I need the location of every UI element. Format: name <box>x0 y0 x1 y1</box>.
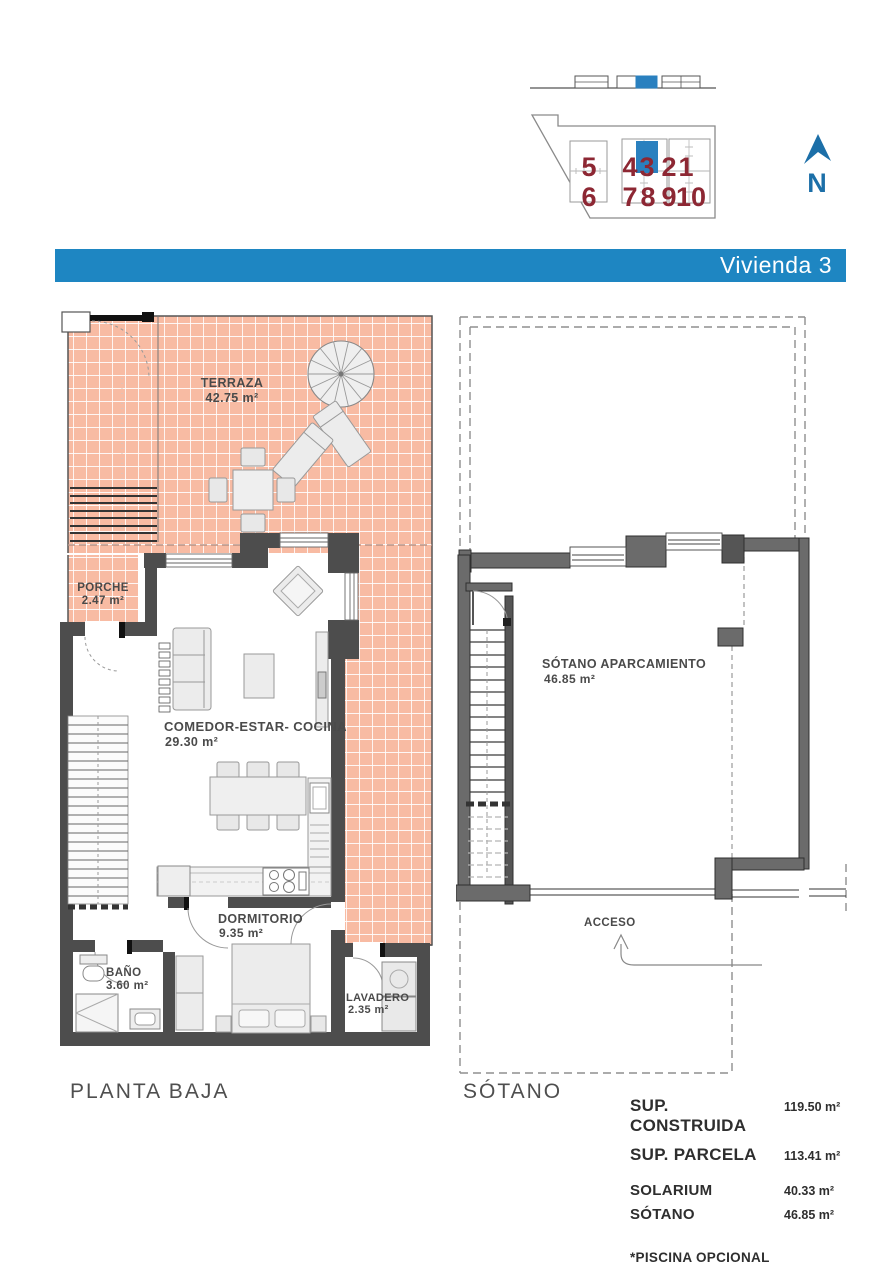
dormitorio-label: DORMITORIO <box>218 912 303 926</box>
shower <box>76 994 118 1032</box>
summary-row: SUP. PARCELA 113.41 m² <box>630 1145 856 1165</box>
floorplan-sheet: 5 6 4 3 7 8 2 1 9 10 N Vivienda 3 <box>0 0 893 1280</box>
lavadero-label: LAVADERO <box>346 992 409 1004</box>
porche-area: 2.47 m² <box>82 595 124 607</box>
area-summary-table: SUP. CONSTRUIDA 119.50 m² SUP. PARCELA 1… <box>630 1096 856 1265</box>
summary-row: SÓTANO 46.85 m² <box>630 1206 856 1223</box>
summary-value: 46.85 m² <box>784 1208 856 1222</box>
north-arrow-icon: N <box>797 133 839 197</box>
ground-floor-plan: TERRAZA 42.75 m² PORCHE 2.47 m² COMEDOR-… <box>60 310 440 1082</box>
unit-number-2: 2 <box>661 152 676 182</box>
page-title: Vivienda 3 <box>720 252 846 279</box>
title-bar: Vivienda 3 <box>55 249 846 282</box>
living-furniture <box>159 566 328 830</box>
unit-number-1: 1 <box>678 152 693 182</box>
summary-note: *PISCINA OPCIONAL <box>630 1250 856 1265</box>
spiral-staircase <box>308 341 374 407</box>
unit-number-10: 10 <box>676 182 706 212</box>
bedroom-furniture <box>176 944 326 1033</box>
plot-boundary <box>460 317 846 1073</box>
aparcamiento-area: 46.85 m² <box>544 672 595 686</box>
aparcamiento-label: SÓTANO APARCAMIENTO <box>542 656 706 671</box>
lavadero-area: 2.35 m² <box>348 1004 389 1016</box>
bano-area: 3.60 m² <box>106 980 148 992</box>
interior-staircase <box>68 716 128 907</box>
armchair <box>273 566 324 617</box>
terraza-area: 42.75 m² <box>205 391 258 405</box>
coffee-table <box>244 654 274 698</box>
access-arrow <box>614 935 762 965</box>
summary-label: SUP. CONSTRUIDA <box>630 1096 784 1136</box>
unit-number-7: 7 <box>622 182 637 212</box>
summary-value: 113.41 m² <box>784 1149 856 1163</box>
summary-value: 40.33 m² <box>784 1184 856 1198</box>
elevation-highlight <box>636 76 657 88</box>
unit-number-4: 4 <box>622 152 637 182</box>
salon-label: COMEDOR-ESTAR- COCINA <box>164 719 347 734</box>
summary-row: SUP. CONSTRUIDA 119.50 m² <box>630 1096 856 1136</box>
elevation-strip <box>530 76 716 88</box>
basement-plan: SÓTANO APARCAMIENTO 46.85 m² ACCESO <box>456 312 848 1078</box>
unit-number-5: 5 <box>581 152 596 182</box>
unit-number-9: 9 <box>661 182 676 212</box>
unit-number-3: 3 <box>639 152 654 182</box>
acceso-label: ACCESO <box>584 917 636 929</box>
bano-label: BAÑO <box>106 966 141 979</box>
basement-caption: SÓTANO <box>463 1080 562 1104</box>
summary-label: SÓTANO <box>630 1206 784 1223</box>
dormitorio-area: 9.35 m² <box>219 926 263 940</box>
basement-walls <box>456 535 809 904</box>
garage-opening <box>530 889 846 897</box>
summary-value: 119.50 m² <box>784 1100 856 1114</box>
unit-number-6: 6 <box>581 182 596 212</box>
sofa <box>173 628 211 710</box>
fridge <box>158 866 190 896</box>
north-label: N <box>807 168 827 197</box>
summary-label: SUP. PARCELA <box>630 1145 784 1165</box>
basement-labels: SÓTANO APARCAMIENTO 46.85 m² ACCESO <box>542 656 706 929</box>
toilet <box>80 955 107 964</box>
ground-floor-caption: PLANTA BAJA <box>70 1080 229 1104</box>
radiator-marks <box>159 643 170 712</box>
terraza-label: TERRAZA <box>201 376 264 390</box>
dining-set <box>210 762 306 830</box>
summary-row: SOLARIUM 40.33 m² <box>630 1182 856 1199</box>
ramp-guides <box>732 548 744 858</box>
unit-number-8: 8 <box>640 182 655 212</box>
summary-label: SOLARIUM <box>630 1182 784 1199</box>
porche-label: PORCHE <box>77 582 129 594</box>
salon-area: 29.30 m² <box>165 735 218 749</box>
